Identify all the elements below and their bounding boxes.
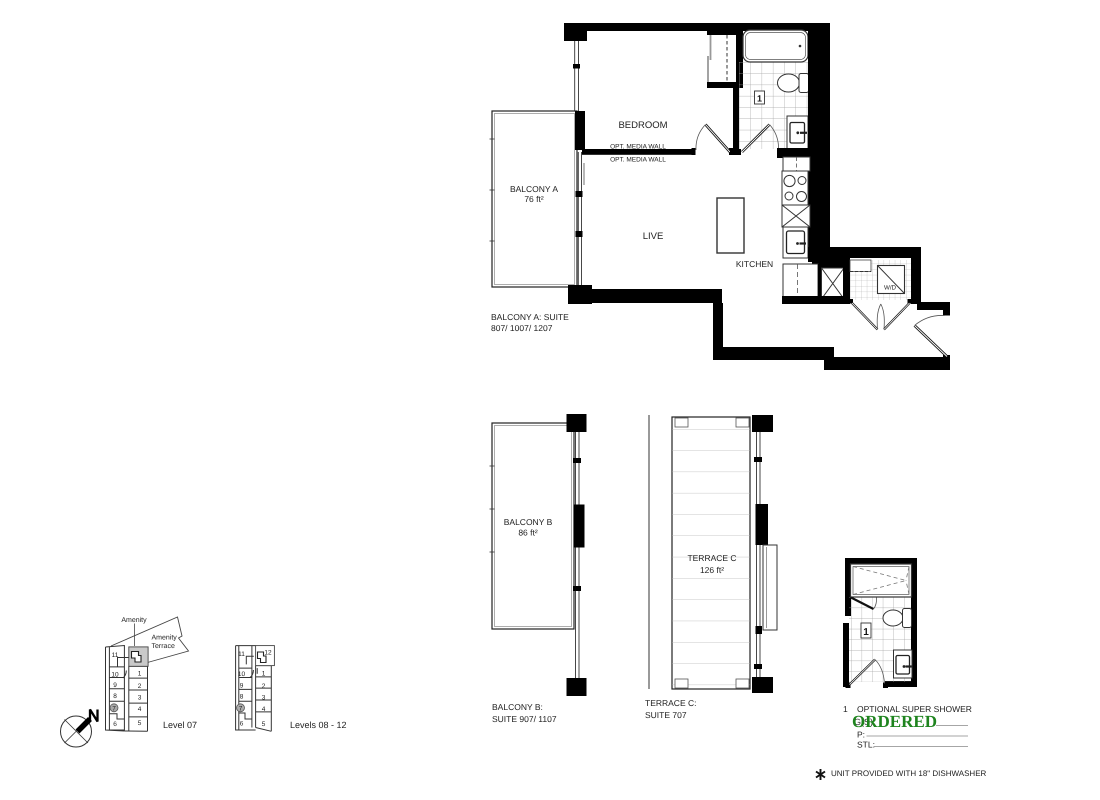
svg-text:5: 5 bbox=[138, 720, 142, 727]
svg-text:TERRACE C:: TERRACE C: bbox=[645, 698, 696, 708]
svg-text:1: 1 bbox=[138, 671, 142, 678]
svg-text:76 ft²: 76 ft² bbox=[524, 194, 544, 204]
svg-text:W/D: W/D bbox=[884, 285, 897, 292]
svg-text:8: 8 bbox=[113, 693, 117, 700]
svg-text:1: 1 bbox=[262, 671, 266, 678]
svg-text:11: 11 bbox=[238, 651, 245, 658]
svg-text:1: 1 bbox=[843, 704, 848, 714]
svg-text:BEDROOM: BEDROOM bbox=[618, 120, 667, 131]
svg-text:KITCHEN: KITCHEN bbox=[736, 259, 773, 269]
svg-text:3: 3 bbox=[262, 695, 266, 702]
svg-text:OPT. MEDIA WALL: OPT. MEDIA WALL bbox=[610, 157, 666, 164]
svg-text:SUITE 907/ 1107: SUITE 907/ 1107 bbox=[492, 714, 557, 724]
svg-text:6: 6 bbox=[113, 721, 117, 728]
svg-text:BALCONY A: SUITE: BALCONY A: SUITE bbox=[491, 312, 569, 322]
svg-text:7: 7 bbox=[112, 706, 116, 713]
svg-text:TERRACE C: TERRACE C bbox=[687, 553, 736, 563]
svg-text:9: 9 bbox=[240, 683, 244, 690]
svg-text:BALCONY A: BALCONY A bbox=[510, 184, 558, 194]
svg-text:8: 8 bbox=[240, 694, 244, 701]
svg-text:1: 1 bbox=[757, 94, 762, 104]
svg-text:UNIT PROVIDED WITH 18" DISHWAS: UNIT PROVIDED WITH 18" DISHWASHER bbox=[831, 769, 987, 778]
svg-text:Amenity: Amenity bbox=[121, 616, 147, 624]
svg-text:1: 1 bbox=[863, 627, 869, 638]
svg-text:SUITE 707: SUITE 707 bbox=[645, 710, 687, 720]
svg-text:11: 11 bbox=[112, 652, 119, 659]
svg-text:7: 7 bbox=[239, 706, 243, 713]
svg-text:ORDERED: ORDERED bbox=[852, 712, 937, 731]
svg-text:P:: P: bbox=[857, 730, 865, 740]
svg-text:4: 4 bbox=[262, 706, 266, 713]
svg-text:5: 5 bbox=[262, 721, 266, 728]
svg-text:10: 10 bbox=[111, 672, 119, 679]
svg-text:OPT. MEDIA WALL: OPT. MEDIA WALL bbox=[610, 144, 666, 151]
svg-text:BALCONY B: BALCONY B bbox=[504, 517, 553, 527]
svg-text:12: 12 bbox=[264, 650, 272, 657]
svg-text:2: 2 bbox=[262, 683, 266, 690]
svg-text:Level 07: Level 07 bbox=[163, 720, 197, 730]
svg-text:86 ft²: 86 ft² bbox=[518, 528, 538, 538]
svg-text:Terrace: Terrace bbox=[152, 643, 175, 650]
svg-text:10: 10 bbox=[238, 671, 246, 678]
svg-text:LIVE: LIVE bbox=[643, 231, 664, 242]
svg-text:3: 3 bbox=[138, 695, 142, 702]
svg-text:6: 6 bbox=[240, 721, 244, 728]
svg-text:2: 2 bbox=[138, 683, 142, 690]
svg-text:Amenity: Amenity bbox=[152, 634, 178, 642]
svg-text:Levels 08 - 12: Levels 08 - 12 bbox=[290, 720, 347, 730]
svg-text:BALCONY B:: BALCONY B: bbox=[492, 702, 543, 712]
svg-text:9: 9 bbox=[113, 682, 117, 689]
svg-text:126 ft²: 126 ft² bbox=[700, 565, 724, 575]
svg-text:4: 4 bbox=[138, 706, 142, 713]
svg-text:807/ 1007/ 1207: 807/ 1007/ 1207 bbox=[491, 323, 553, 333]
svg-text:STL:: STL: bbox=[857, 740, 875, 750]
